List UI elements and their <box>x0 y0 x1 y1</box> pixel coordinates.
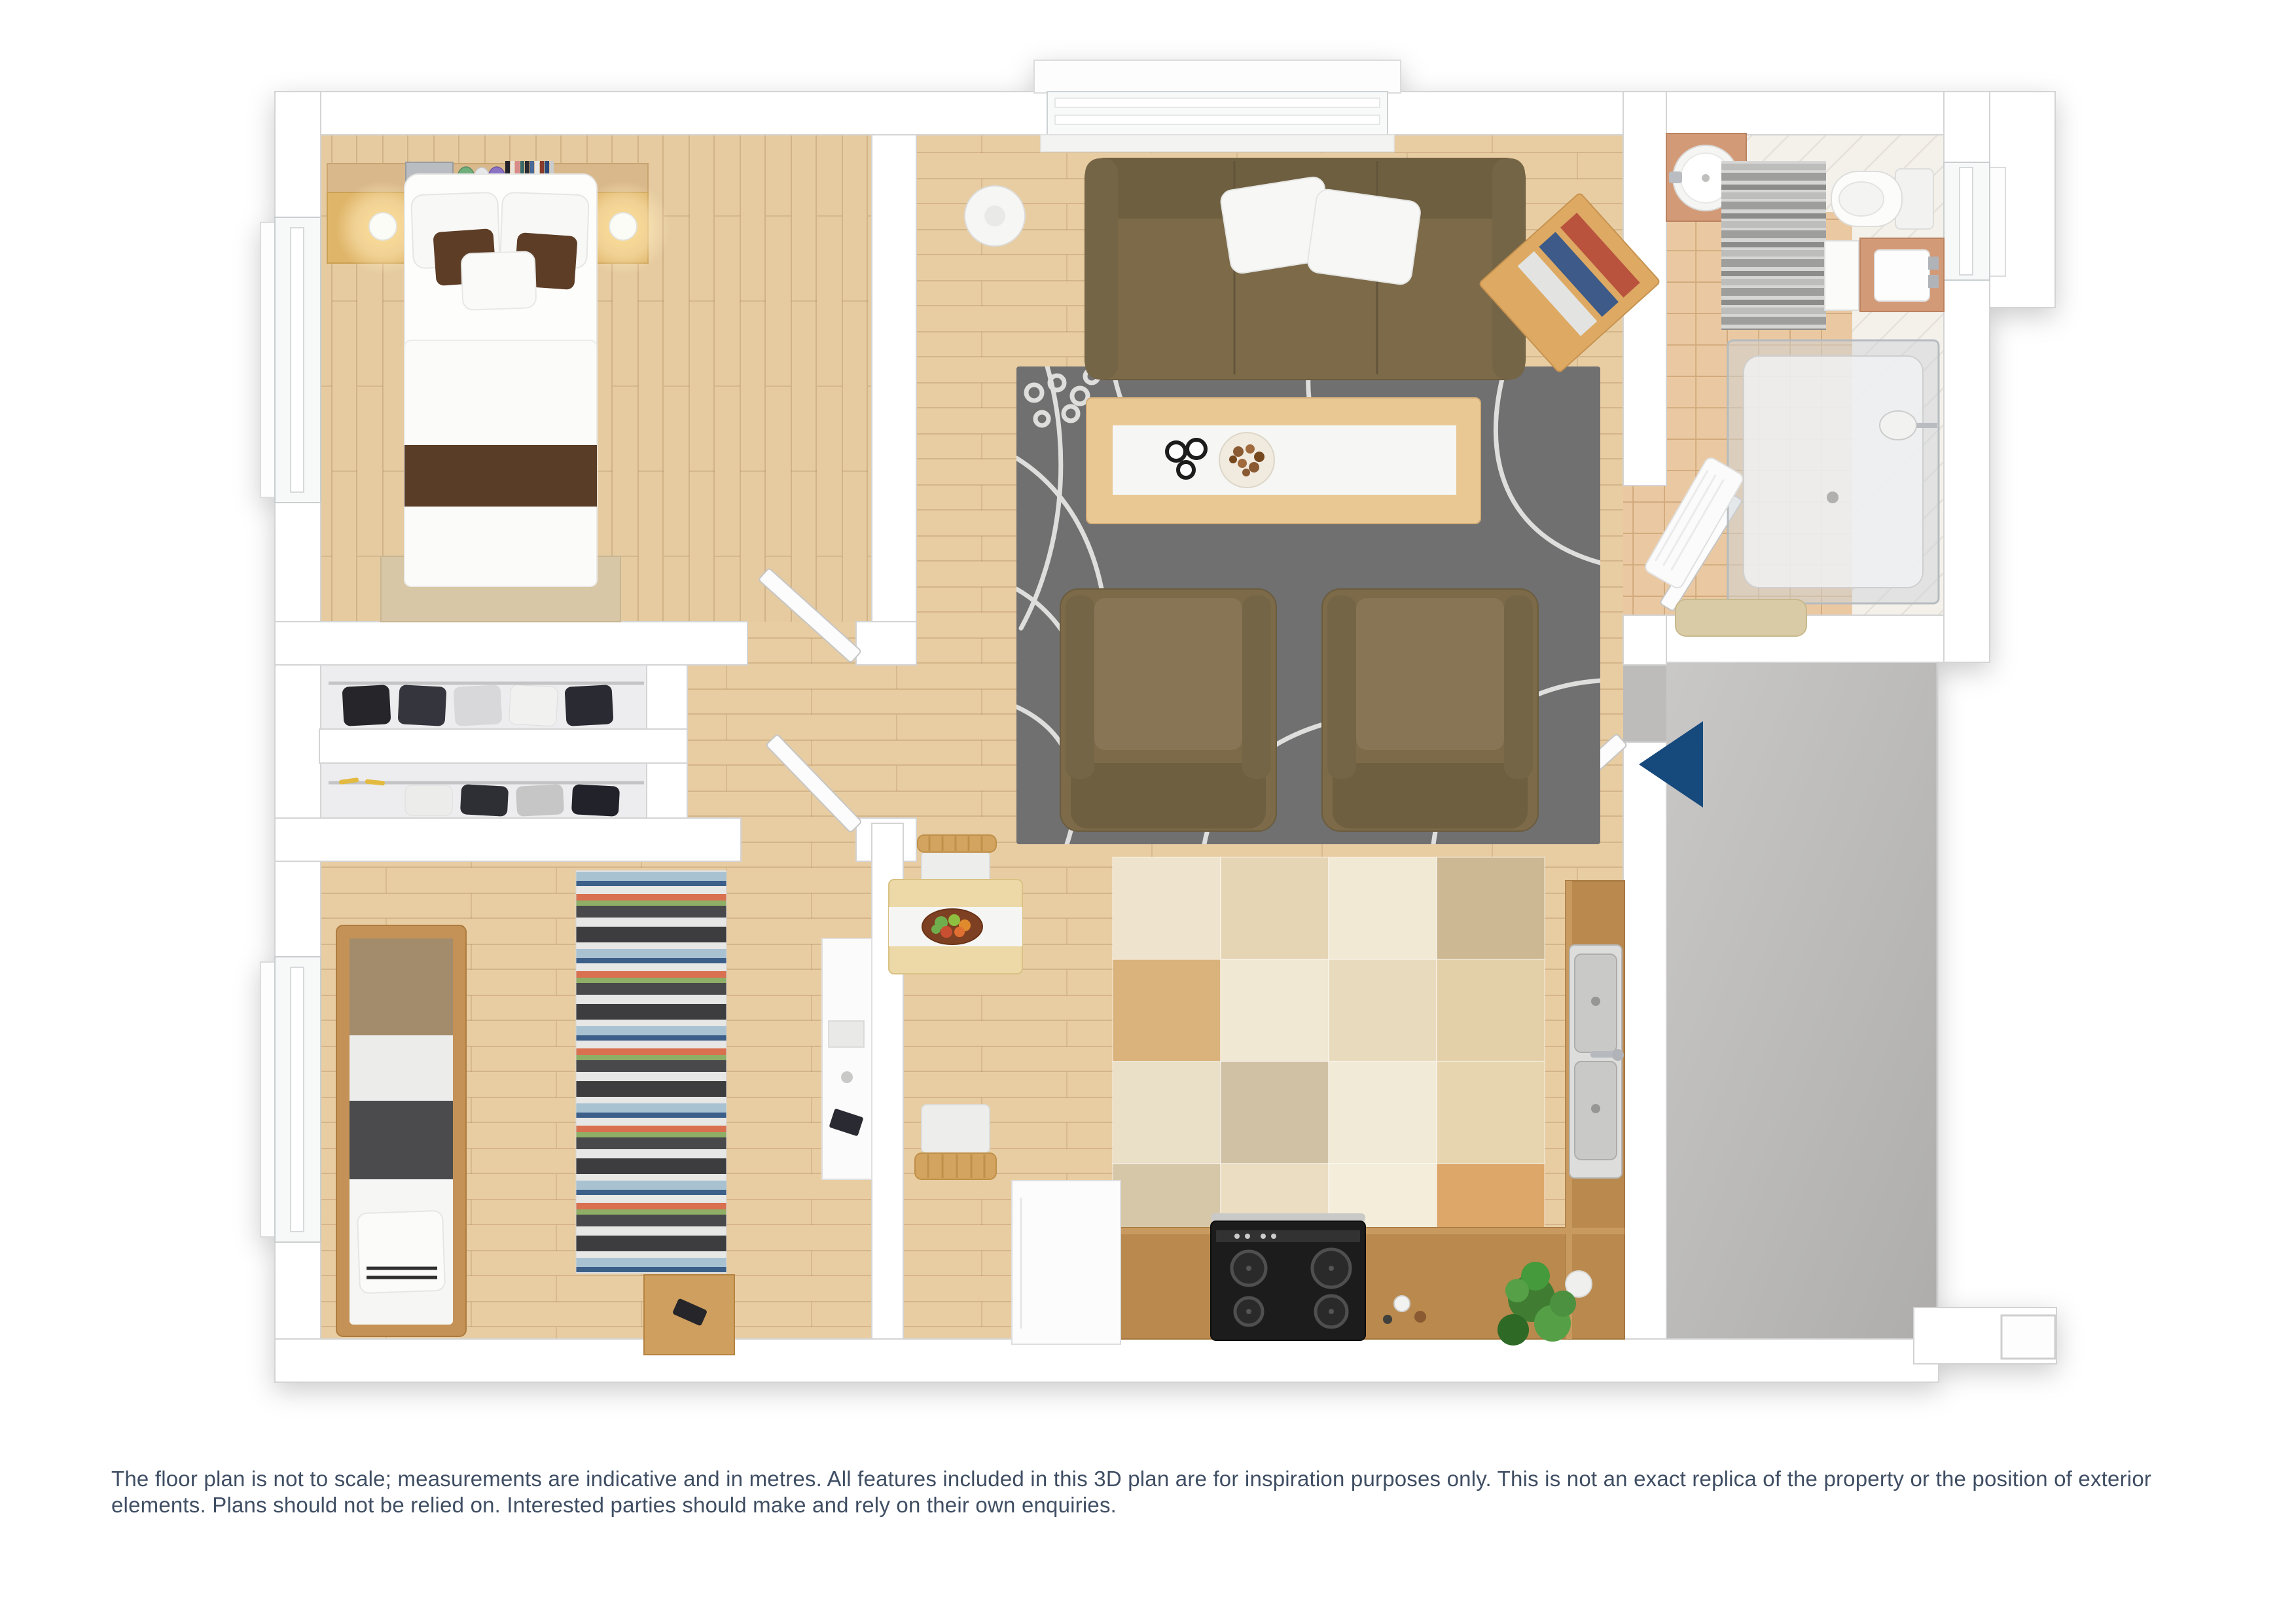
pillow-center <box>461 251 537 310</box>
desk <box>822 938 872 1179</box>
wall-living-right-mid <box>1623 615 1666 665</box>
toilet <box>1831 169 1933 229</box>
single-bed-pillow <box>357 1211 445 1293</box>
dining-table <box>889 880 1022 974</box>
sofa <box>1085 158 1525 380</box>
bedside-cube <box>644 1275 734 1355</box>
stove <box>1211 1213 1365 1340</box>
shower <box>1728 340 1939 603</box>
wall-bottom <box>275 1339 1939 1382</box>
dining-chair-bottom <box>915 1105 996 1179</box>
hand-towel <box>1676 599 1806 636</box>
armchair-right <box>1322 589 1538 831</box>
double-bed <box>404 174 597 586</box>
coffee-table <box>1086 398 1480 524</box>
window-living-top <box>1034 60 1401 152</box>
bedside-lamp-left <box>369 213 397 240</box>
entry-step-mat <box>2001 1315 2055 1359</box>
hanging-clothes-1 <box>342 685 613 726</box>
wall-master-bottom-left <box>275 622 747 665</box>
shower-head <box>1880 411 1916 440</box>
bed-throw <box>404 445 597 507</box>
entrance-terrace-floor <box>1666 662 1937 1339</box>
page: The floor plan is not to scale; measurem… <box>0 0 2296 1623</box>
single-bed <box>336 925 466 1336</box>
floor-lamp <box>965 186 1025 246</box>
wall-bedroom2-top-left <box>275 818 741 861</box>
patchwork-rug <box>1113 857 1545 1266</box>
vanity-sink <box>1825 238 1944 312</box>
dining-chair-top <box>918 835 996 885</box>
kitchen-sink <box>1570 945 1624 1178</box>
bedside-lamp-right <box>609 213 637 240</box>
window-master-left <box>260 217 321 503</box>
floor-plan <box>0 0 2296 1623</box>
striped-runner-rug <box>576 870 726 1274</box>
bath-mat <box>1721 161 1826 330</box>
armchair-left <box>1060 589 1276 831</box>
wall-master-bottom-right <box>856 622 916 665</box>
wall-master-right <box>872 135 916 623</box>
wall-closet-mid <box>319 729 687 763</box>
disclaimer-text: The floor plan is not to scale; measurem… <box>111 1466 2232 1518</box>
fridge-cabinet <box>1012 1181 1121 1344</box>
front-doorway-floor <box>1623 665 1666 742</box>
fruit-bowl <box>922 909 982 944</box>
window-bathroom-right <box>1944 162 2005 280</box>
wall-living-right-lower <box>1623 742 1666 1339</box>
window-bedroom2-left <box>260 957 321 1242</box>
sofa-pillow-right <box>1306 188 1422 285</box>
nut-bowl <box>1219 433 1274 488</box>
